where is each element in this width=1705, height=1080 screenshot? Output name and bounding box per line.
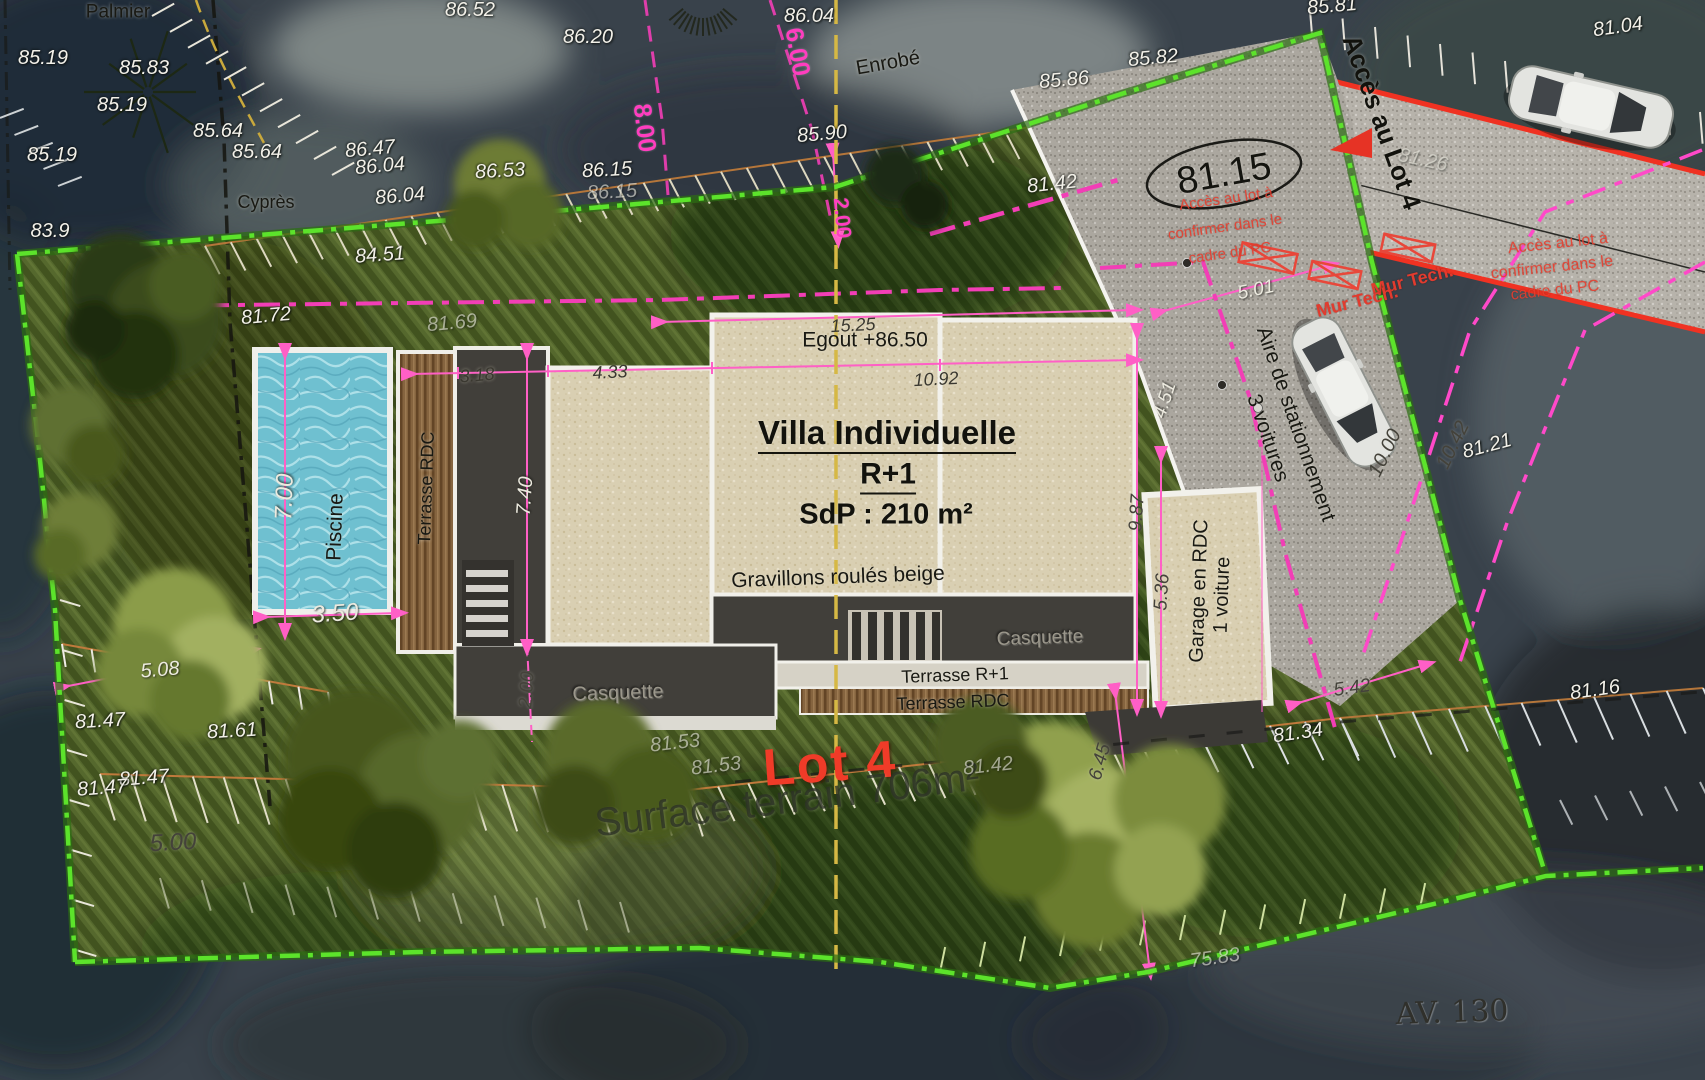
villa-center-block xyxy=(712,315,940,595)
pool-deck xyxy=(398,352,455,652)
garage xyxy=(1144,489,1270,709)
person-icon xyxy=(1218,381,1227,390)
villa-left-wing xyxy=(548,368,712,645)
pool xyxy=(255,350,390,612)
terrace-r1-band xyxy=(776,662,1148,688)
pergola-slats xyxy=(848,610,942,662)
person-icon xyxy=(1254,404,1263,413)
site-plan: Palmier85.1985.8385.1985.1985.6485.6486.… xyxy=(0,0,1705,1080)
site-plan-canvas xyxy=(0,0,1705,1080)
person-icon xyxy=(1183,259,1192,268)
